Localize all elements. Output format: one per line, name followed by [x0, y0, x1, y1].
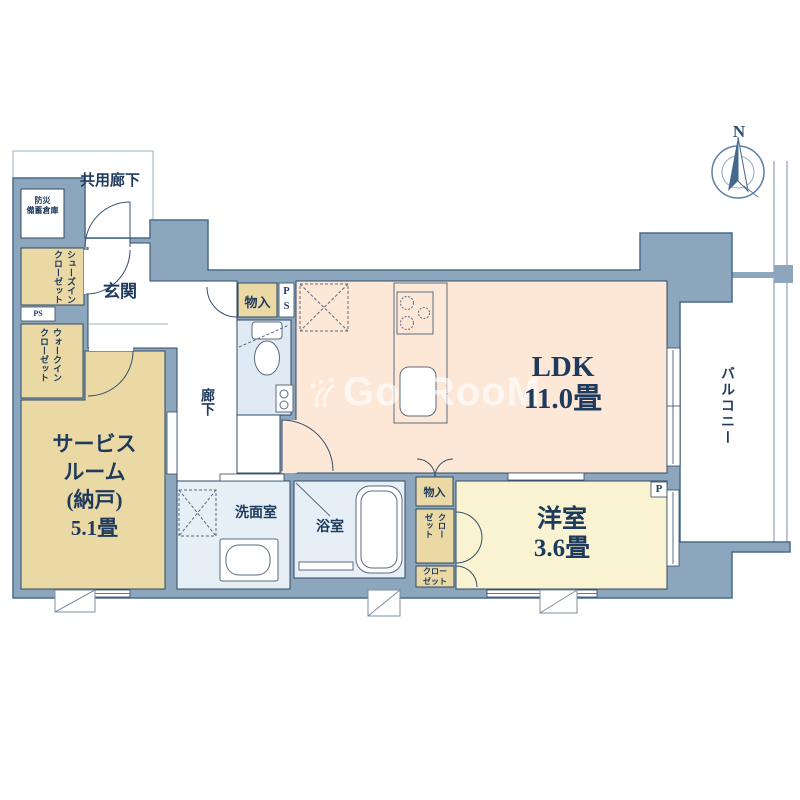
common-corridor-label: 共用廊下 [68, 169, 152, 190]
ldk-window [667, 348, 680, 466]
ldk-storage-label: 物入 [416, 484, 453, 500]
service-slider [167, 412, 177, 474]
closet-tall-label: クロー ゼット [422, 513, 448, 561]
toilet-icon [255, 341, 280, 375]
pipe-p-label: P [651, 482, 667, 497]
walk-in-closet-label: ウォークイン クローゼット [37, 328, 63, 396]
disaster-storage-label: 防災 備蓄倉庫 [20, 196, 65, 216]
washroom-slider [220, 474, 284, 481]
bath-ledge-icon [299, 562, 353, 570]
closet-small-label: クロー ゼット [416, 567, 454, 586]
bathtub-icon [356, 486, 402, 573]
compass-icon [712, 137, 764, 198]
corridor-label: 廊下 [196, 388, 216, 424]
washroom-label: 洗面室 [212, 502, 300, 522]
ldk-door-nook [282, 420, 297, 473]
ldk-western-slider [508, 473, 584, 480]
ps-center-label: P S [280, 285, 293, 314]
service-room-label: サービス ルーム (納戸) 5.1畳 [23, 430, 166, 542]
balcony-label: バルコニー [716, 366, 736, 446]
balcony-railing [774, 161, 787, 552]
bathroom-label: 浴室 [302, 516, 358, 536]
hall-storage-label: 物入 [238, 292, 277, 311]
floorplan-canvas: GooRooM 共用廊下 防災 備蓄倉庫 シューズイン クローゼット 玄関 PS… [0, 0, 800, 800]
ldk-label: LDK 11.0畳 [468, 351, 658, 415]
watermark-icon [308, 376, 338, 410]
western-room-label: 洋室 3.6畳 [468, 505, 656, 563]
corridor-nook [237, 415, 280, 473]
toilet-cabinet-icon [276, 385, 293, 412]
compass-north-label: N [728, 122, 750, 142]
ps-left-label: PS [21, 307, 55, 321]
shoes-closet-label: シューズイン クローゼット [51, 250, 77, 306]
entrance-label: 玄関 [100, 277, 140, 302]
